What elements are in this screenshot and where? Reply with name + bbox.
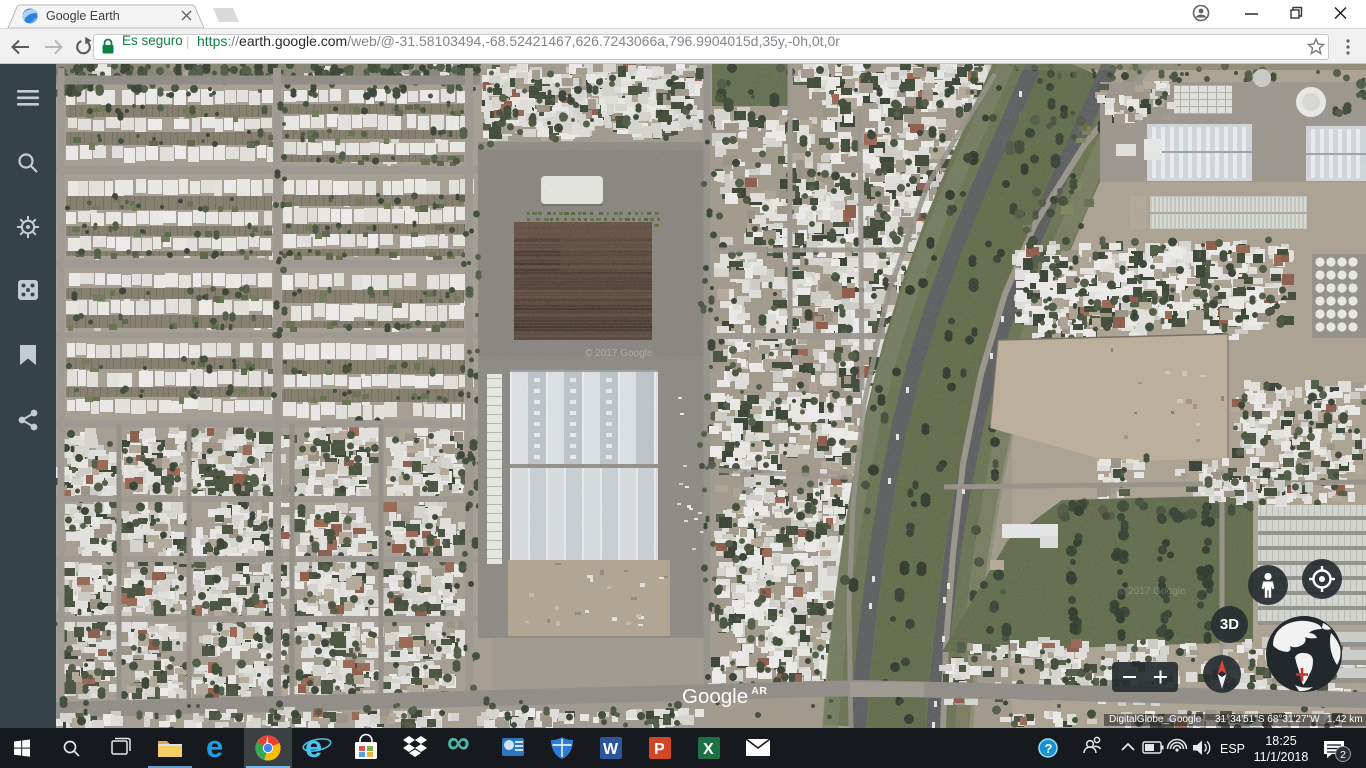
svg-text:X: X <box>703 741 714 758</box>
svg-text:11/1/2018: 11/1/2018 <box>1254 750 1309 764</box>
svg-text:e: e <box>305 729 322 764</box>
svg-text:e: e <box>206 729 223 764</box>
svg-text:2: 2 <box>1340 749 1346 761</box>
svg-text:∞: ∞ <box>447 728 470 760</box>
svg-text:ESP: ESP <box>1220 742 1245 756</box>
svg-text:P: P <box>654 741 665 758</box>
svg-text:© 2017 Google: © 2017 Google <box>1118 586 1186 597</box>
svg-text:?: ? <box>1045 741 1053 756</box>
svg-text:18:25: 18:25 <box>1265 734 1296 748</box>
svg-text:© 2017 Google: © 2017 Google <box>585 348 653 359</box>
svg-text:W: W <box>603 741 619 758</box>
